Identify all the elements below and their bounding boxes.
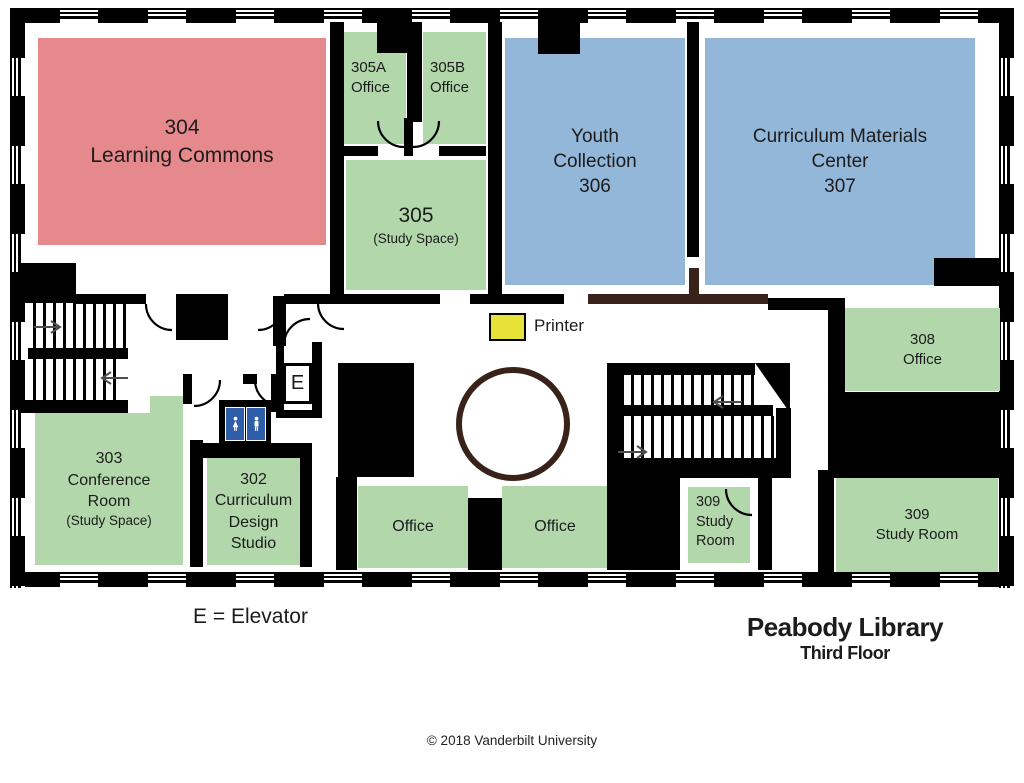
room-309-study-room-large: 309 Study Room <box>836 478 998 572</box>
room-label-line: (Study Space) <box>66 512 152 530</box>
room-office-right: Office <box>502 486 608 568</box>
room-305b-office: 305B Office <box>423 32 486 144</box>
female-pictogram <box>229 412 242 436</box>
room-label-line: Youth <box>571 124 619 149</box>
printer-label: Printer <box>534 316 584 336</box>
wall-segment <box>934 258 1000 286</box>
room-307-curriculum-materials-center: Curriculum Materials Center 307 <box>705 38 975 285</box>
wall-segment <box>18 400 128 413</box>
room-label-line: Learning Commons <box>90 142 273 170</box>
wall-segment <box>468 498 502 570</box>
restroom-women-icon <box>225 407 245 441</box>
restroom-men-icon <box>246 407 266 441</box>
room-label-line: 305A <box>351 58 386 78</box>
room-303-conference-room: 303 Conference Room (Study Space) <box>35 413 183 565</box>
room-label-line: Collection <box>553 149 636 174</box>
male-pictogram <box>250 412 263 436</box>
room-label-line: Office <box>392 516 434 537</box>
room-label-line: Study Room <box>876 525 959 545</box>
wall-segment <box>538 22 580 54</box>
room-label-line: 309 <box>696 493 720 513</box>
window-wall-top <box>10 8 1014 23</box>
room-label-line: 308 <box>910 330 935 350</box>
door-arc <box>318 303 344 329</box>
wall-segment <box>828 298 845 392</box>
wall-segment <box>828 392 1000 478</box>
room-label-line: Office <box>351 78 390 98</box>
room-label-line: Curriculum <box>215 490 292 511</box>
elevator-box: E <box>283 363 312 404</box>
room-308-office: 308 Office <box>845 308 1000 391</box>
room-309-study-room-small: 309 Study Room <box>688 487 750 563</box>
wall-segment <box>470 294 564 304</box>
wood-railing <box>689 268 699 304</box>
room-305-study-space: 305 (Study Space) <box>346 160 486 290</box>
room-label-line: 309 <box>904 505 929 525</box>
map-title: Peabody Library Third Floor <box>720 613 970 664</box>
staircase-left-lower-flight <box>33 359 121 403</box>
room-label-line: Conference <box>68 470 151 491</box>
wall-segment <box>176 294 228 340</box>
room-label-line: 303 <box>96 448 123 469</box>
wall-segment <box>330 22 344 294</box>
wall-segment <box>404 118 413 156</box>
door-arc <box>284 319 310 345</box>
printer-marker <box>489 313 526 341</box>
room-label-line: Studio <box>231 533 276 554</box>
wall-segment <box>284 294 346 304</box>
wall-segment <box>243 374 257 384</box>
wall-segment <box>776 408 791 463</box>
wall-segment <box>336 477 357 570</box>
wall-segment <box>439 146 486 156</box>
room-label-line: Study <box>696 513 733 533</box>
room-label-line: 306 <box>579 174 611 199</box>
wall-segment <box>607 363 621 470</box>
room-label-line: Office <box>430 78 469 98</box>
room-label-line: Curriculum Materials <box>753 124 927 149</box>
window-wall-right <box>999 8 1014 588</box>
room-306-youth-collection: Youth Collection 306 <box>505 38 685 285</box>
wall-segment <box>377 22 412 53</box>
room-label-line: 304 <box>164 114 199 142</box>
wall-segment <box>28 348 128 359</box>
elevator-letter: E <box>291 372 304 395</box>
room-302-curriculum-design-studio: 302 Curriculum Design Studio <box>207 458 300 565</box>
door-arc <box>194 380 220 406</box>
room-label-line: Design <box>229 512 279 533</box>
room-304-learning-commons: 304 Learning Commons <box>38 38 326 245</box>
wall-segment <box>18 263 76 303</box>
wall-segment <box>607 478 680 570</box>
elevator-legend: E = Elevator <box>193 605 308 629</box>
map-title-line2: Third Floor <box>720 643 970 664</box>
wall-segment <box>758 478 772 570</box>
room-label-line: Office <box>534 516 576 537</box>
room-label-line: (Study Space) <box>373 230 459 248</box>
door-arc <box>146 304 172 330</box>
wall-segment <box>338 363 414 477</box>
wall-segment <box>276 410 322 418</box>
copyright-text: © 2018 Vanderbilt University <box>0 733 1024 748</box>
room-label-line: Office <box>903 350 942 370</box>
staircase-left-upper-flight <box>33 302 127 348</box>
wall-segment <box>273 296 286 346</box>
wall-segment <box>607 363 755 375</box>
map-title-line1: Peabody Library <box>720 613 970 643</box>
wood-railing <box>588 294 768 304</box>
room-label-line: Room <box>88 491 131 512</box>
wall-segment <box>344 294 440 304</box>
window-wall-bottom <box>10 572 1014 587</box>
wall-segment <box>203 443 303 458</box>
floor-plan: 304 Learning Commons 305A Office 305B Of… <box>0 0 1024 783</box>
room-office-left: Office <box>358 486 468 568</box>
room-label-line: Room <box>696 532 735 552</box>
wall-segment <box>818 470 834 572</box>
wall-segment <box>312 342 322 416</box>
wall-segment <box>344 146 378 156</box>
wall-segment <box>183 374 192 404</box>
wall-segment <box>190 440 203 567</box>
wall-segment <box>687 22 699 257</box>
room-label-line: 305B <box>430 58 465 78</box>
room-label-line: 305 <box>398 202 433 230</box>
wall-segment <box>607 458 791 478</box>
staircase-right-upper-flight <box>621 375 755 405</box>
room-label-line: 307 <box>824 174 856 199</box>
staircase-right-lower-flight <box>621 416 776 458</box>
wall-segment <box>488 22 502 294</box>
wall-segment <box>300 443 312 567</box>
wall-segment <box>621 405 773 416</box>
room-label-line: Center <box>811 149 868 174</box>
room-label-line: 302 <box>240 469 267 490</box>
rotunda-circle <box>456 367 570 481</box>
